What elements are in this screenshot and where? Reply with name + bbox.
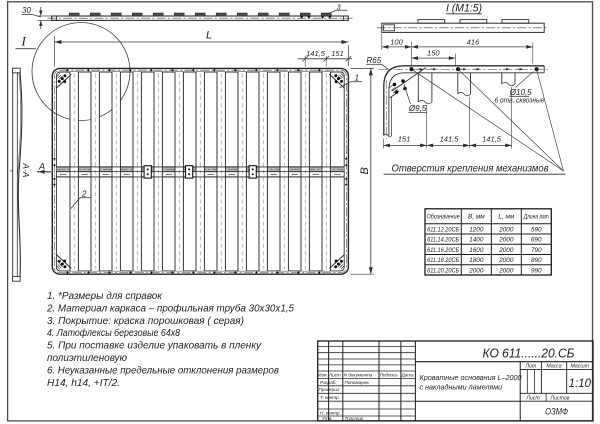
- svg-text:Проверил: Проверил: [319, 387, 340, 392]
- svg-text:1400: 1400: [469, 237, 484, 244]
- svg-text:1: 1: [355, 74, 359, 83]
- svg-text:416: 416: [467, 37, 480, 46]
- svg-text:ОЗМФ: ОЗМФ: [545, 407, 568, 418]
- svg-text:5. При поставке изделие упаков: 5. При поставке изделие упаковать в плен…: [47, 341, 262, 352]
- svg-text:L, мм: L, мм: [498, 213, 514, 220]
- svg-text:6. Неуказанные предельные откл: 6. Неуказанные предельные отклонения раз…: [47, 365, 280, 376]
- svg-text:I: I: [21, 34, 27, 49]
- svg-text:2000: 2000: [498, 247, 514, 254]
- svg-text:Изм.: Изм.: [318, 372, 328, 377]
- svg-text:Лист: Лист: [525, 395, 540, 401]
- svg-text:Разраб.: Разраб.: [320, 380, 337, 385]
- svg-text:с накладными ламелями: с накладными ламелями: [420, 382, 503, 391]
- svg-text:В, мм: В, мм: [468, 213, 485, 220]
- svg-text:1. *Размеры для справок: 1. *Размеры для справок: [47, 291, 163, 302]
- svg-text:611.12.20СБ: 611.12.20СБ: [427, 226, 459, 233]
- svg-text:Лист: Лист: [328, 372, 341, 377]
- svg-text:2000: 2000: [498, 237, 514, 244]
- svg-text:N документа: N документа: [344, 372, 373, 377]
- svg-text:151: 151: [331, 49, 344, 58]
- svg-text:890: 890: [531, 257, 542, 264]
- svg-text:Т. контр.: Т. контр.: [320, 395, 340, 400]
- svg-text:590: 590: [531, 226, 542, 233]
- svg-text:790: 790: [531, 247, 542, 254]
- svg-text:I (М1:5): I (М1:5): [446, 3, 482, 15]
- svg-text:141,5: 141,5: [306, 49, 326, 58]
- svg-text:150: 150: [427, 49, 440, 58]
- svg-text:4. Латофлексы березовые 64х8: 4. Латофлексы березовые 64х8: [47, 327, 180, 339]
- svg-text:Кроватные основания L–2000: Кроватные основания L–2000: [420, 373, 522, 382]
- svg-text:611.20.20СБ: 611.20.20СБ: [427, 267, 459, 274]
- svg-text:2. Материал каркаса – профил: 2. Материал каркаса – профильная труба 3…: [46, 302, 294, 314]
- svg-text:Масшт: Масшт: [571, 363, 590, 369]
- svg-text:Отверстия крепления механизмов: Отверстия крепления механизмов: [392, 163, 549, 175]
- svg-text:КО 611......20.СБ: КО 611......20.СБ: [483, 346, 575, 361]
- svg-text:1800: 1800: [469, 257, 484, 264]
- svg-text:2: 2: [81, 190, 87, 199]
- svg-text:Утв.: Утв.: [322, 416, 332, 421]
- svg-text:151: 151: [398, 135, 411, 144]
- svg-text:А-А: А-А: [21, 162, 31, 178]
- svg-text:Н. контр.: Н. контр.: [320, 410, 341, 415]
- svg-text:Дата: Дата: [401, 372, 415, 377]
- svg-text:Листов: Листов: [550, 395, 570, 401]
- svg-text:Подпись: Подпись: [380, 372, 399, 377]
- svg-text:Длина лат: Длина лат: [523, 213, 549, 220]
- svg-text:L: L: [206, 30, 212, 42]
- svg-text:990: 990: [531, 267, 542, 274]
- svg-text:100: 100: [390, 37, 403, 46]
- svg-text:2000: 2000: [498, 257, 514, 264]
- svg-text:611.16.20СБ: 611.16.20СБ: [427, 247, 459, 254]
- svg-text:141,5: 141,5: [482, 135, 502, 144]
- svg-text:Масса: Масса: [546, 363, 561, 369]
- svg-text:Ø9,5: Ø9,5: [408, 104, 427, 113]
- svg-text:690: 690: [531, 237, 542, 244]
- svg-text:Ø10,5: Ø10,5: [509, 88, 532, 97]
- svg-text:R65: R65: [367, 56, 382, 65]
- svg-text:6 отв. сквозные: 6 отв. сквозные: [495, 98, 545, 105]
- svg-text:В: В: [359, 167, 371, 174]
- svg-text:3. Покрытие: краска порошкова: 3. Покрытие: краска порошковая ( серая): [47, 316, 244, 327]
- svg-text:2000: 2000: [498, 226, 514, 233]
- svg-text:Пономарев: Пономарев: [345, 380, 370, 385]
- svg-text:1600: 1600: [469, 247, 484, 254]
- svg-text:Толстик: Толстик: [345, 416, 364, 421]
- svg-text:полиэтиленовую: полиэтиленовую: [47, 353, 127, 364]
- svg-text:2000: 2000: [468, 267, 484, 274]
- svg-text:2000: 2000: [498, 267, 514, 274]
- svg-text:611.14.20СБ: 611.14.20СБ: [427, 237, 459, 244]
- svg-text:Обозначение: Обозначение: [427, 212, 460, 220]
- svg-text:30: 30: [22, 6, 31, 15]
- svg-text:611.18.20СБ: 611.18.20СБ: [427, 257, 459, 264]
- svg-text:1200: 1200: [469, 226, 484, 233]
- svg-text:А: А: [38, 162, 45, 172]
- svg-text:141,5: 141,5: [440, 135, 460, 144]
- svg-text:1:10: 1:10: [569, 378, 592, 390]
- svg-text:Н14, h14, +IT/2.: Н14, h14, +IT/2.: [47, 378, 120, 389]
- svg-text:Лит: Лит: [524, 363, 536, 369]
